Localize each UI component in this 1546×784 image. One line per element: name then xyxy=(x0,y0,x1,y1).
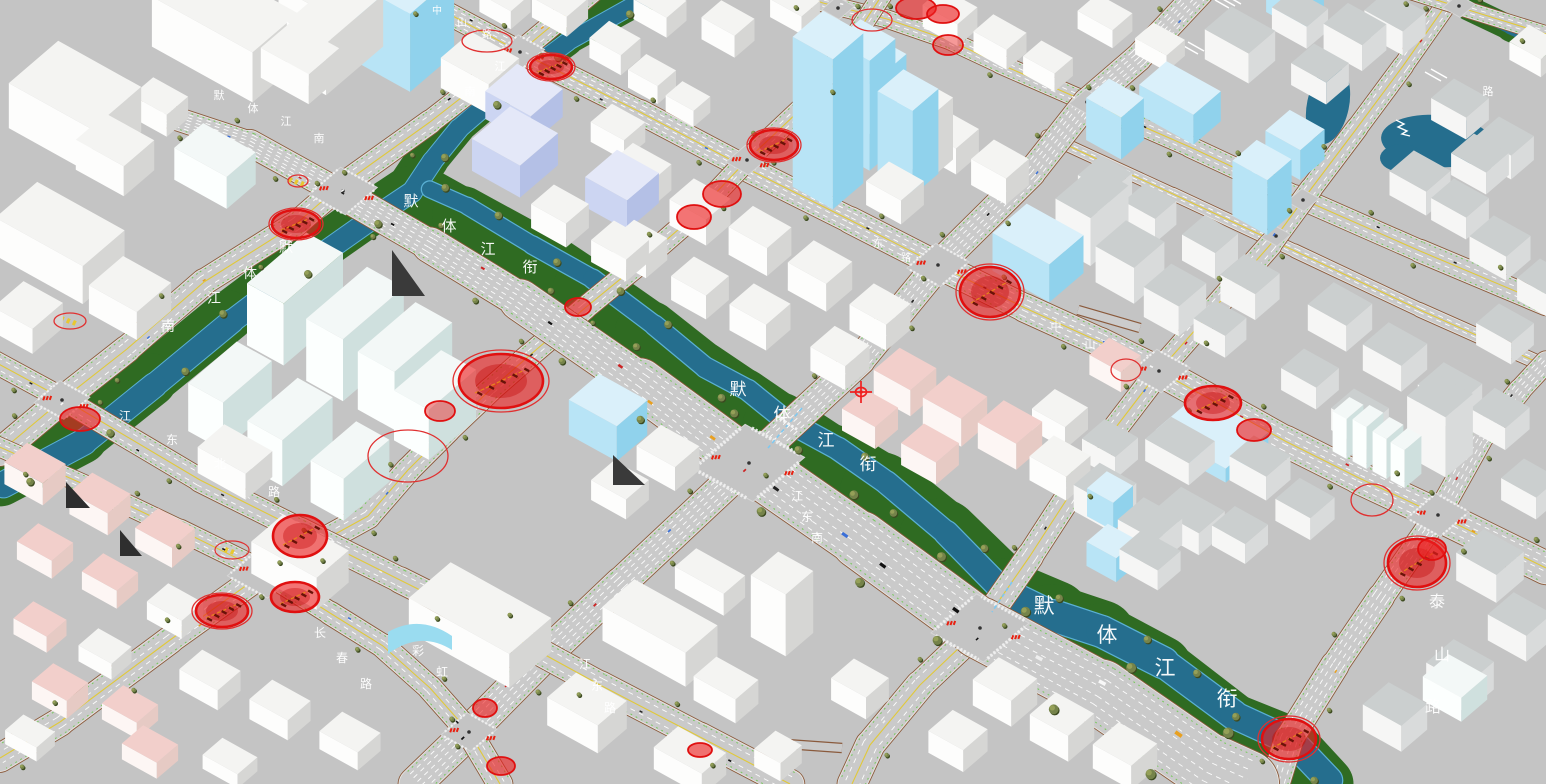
svg-text:中: 中 xyxy=(1051,320,1062,333)
svg-text:南: 南 xyxy=(465,85,476,98)
svg-text:江: 江 xyxy=(207,290,221,306)
svg-text:春: 春 xyxy=(336,651,348,665)
svg-text:虹: 虹 xyxy=(436,665,448,679)
svg-text:江: 江 xyxy=(480,241,495,258)
svg-text:江: 江 xyxy=(119,409,131,423)
svg-text:南: 南 xyxy=(811,530,823,545)
svg-text:体: 体 xyxy=(441,218,456,235)
svg-text:路: 路 xyxy=(268,484,280,499)
svg-text:山: 山 xyxy=(1085,338,1096,351)
svg-text:衔: 衔 xyxy=(522,259,537,276)
svg-text:体: 体 xyxy=(774,405,791,424)
svg-text:衔: 衔 xyxy=(860,455,877,474)
svg-text:东: 东 xyxy=(166,433,178,447)
svg-text:默: 默 xyxy=(1034,595,1055,618)
svg-text:北: 北 xyxy=(214,457,226,471)
svg-text:长: 长 xyxy=(314,626,326,640)
svg-text:江: 江 xyxy=(791,489,803,503)
svg-text:山: 山 xyxy=(1434,646,1450,664)
svg-text:彩: 彩 xyxy=(412,644,424,658)
svg-text:体: 体 xyxy=(248,101,259,115)
svg-text:衔: 衔 xyxy=(1217,688,1238,711)
svg-text:默: 默 xyxy=(403,193,418,210)
svg-text:默: 默 xyxy=(214,89,225,102)
svg-text:路: 路 xyxy=(1483,85,1494,98)
svg-text:体: 体 xyxy=(1097,624,1118,647)
svg-text:南: 南 xyxy=(314,132,325,145)
svg-text:山: 山 xyxy=(457,17,467,29)
svg-text:路: 路 xyxy=(604,700,616,715)
svg-text:泰: 泰 xyxy=(1429,593,1445,611)
svg-text:路: 路 xyxy=(1425,698,1441,716)
svg-text:江: 江 xyxy=(495,60,506,73)
svg-text:南: 南 xyxy=(161,318,175,334)
svg-text:中: 中 xyxy=(432,4,442,17)
svg-text:东: 东 xyxy=(591,679,603,693)
svg-text:江: 江 xyxy=(1155,657,1176,680)
svg-text:江: 江 xyxy=(579,657,591,671)
svg-text:默: 默 xyxy=(730,380,747,399)
svg-text:江: 江 xyxy=(818,431,835,450)
svg-text:路: 路 xyxy=(360,676,372,691)
svg-text:江: 江 xyxy=(281,115,292,128)
svg-text:东: 东 xyxy=(801,510,813,524)
svg-text:默: 默 xyxy=(279,239,293,255)
svg-text:路: 路 xyxy=(482,28,492,41)
svg-text:体: 体 xyxy=(243,265,257,281)
svg-text:路: 路 xyxy=(901,251,911,264)
svg-text:东: 东 xyxy=(873,237,883,250)
